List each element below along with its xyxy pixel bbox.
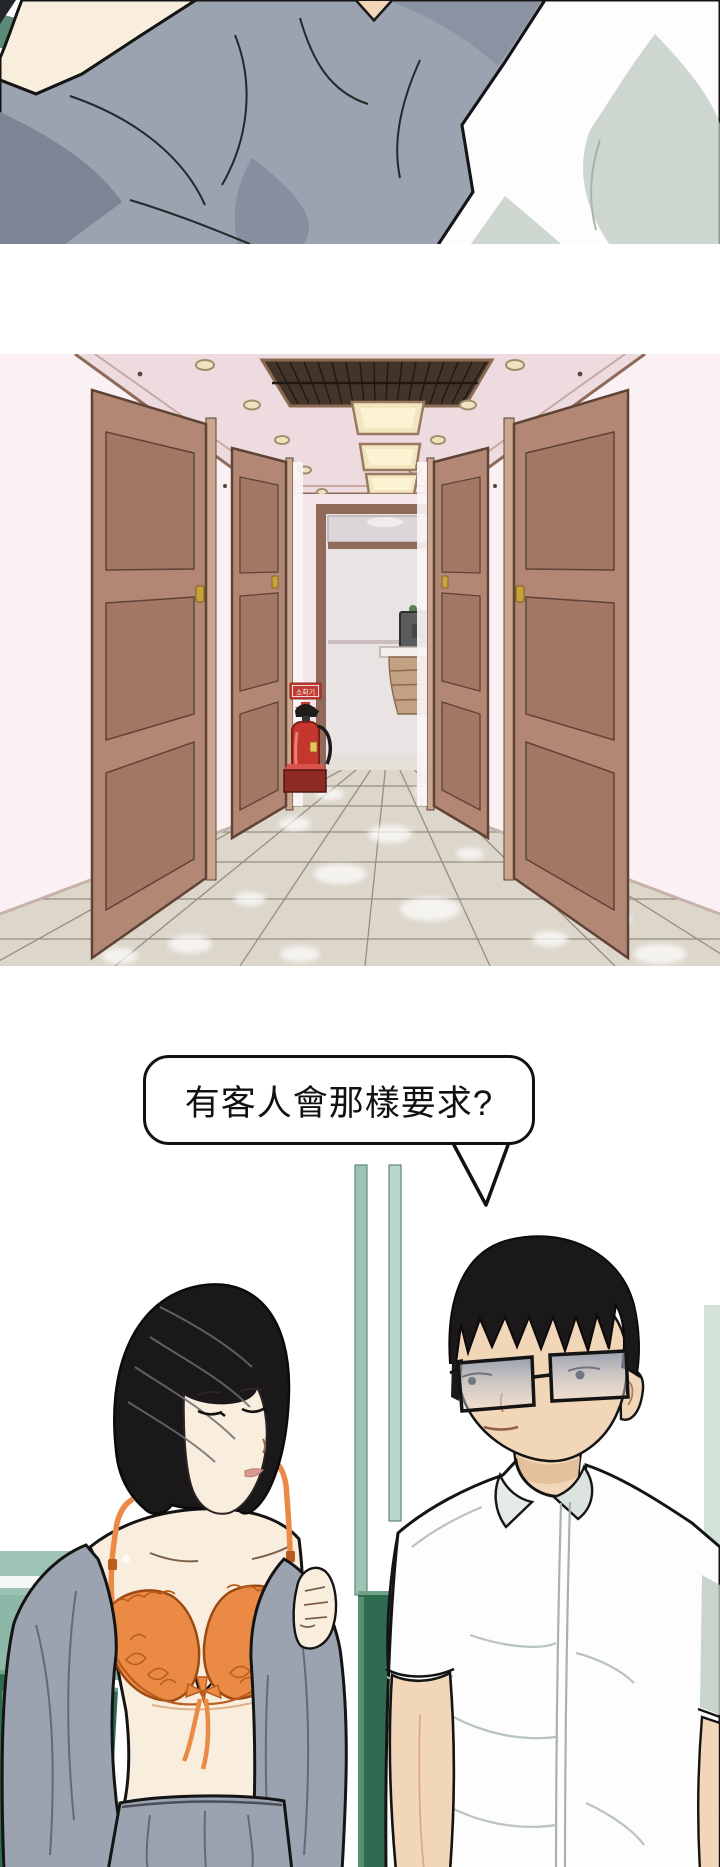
right-far-wall-strip — [417, 462, 427, 806]
woman-skirt — [108, 1796, 292, 1867]
extinguisher-label — [310, 742, 317, 752]
panel-closeup — [0, 0, 720, 244]
woman-hand — [294, 1568, 336, 1649]
panel-dialogue — [0, 1155, 720, 1867]
glasses-right-lens — [550, 1351, 628, 1401]
left-far-door-hinge — [272, 576, 278, 588]
right-near-door-frame — [504, 418, 514, 880]
extinguisher-stand-top — [284, 764, 326, 770]
fire-extinguisher-sign: 소화기 — [290, 683, 321, 699]
right-far-door — [417, 448, 488, 838]
glasses-left-lens — [458, 1357, 534, 1411]
right-far-door-hinge — [442, 576, 448, 588]
page-root: 소화기 — [0, 0, 720, 1867]
right-sleeve-shadow — [700, 1575, 720, 1715]
ceiling-vent — [262, 360, 492, 406]
woman-earring — [256, 1482, 262, 1488]
left-near-door-frame — [206, 418, 216, 880]
left-near-door — [92, 390, 216, 958]
right-near-door — [504, 390, 628, 958]
right-edge-strip — [704, 1305, 720, 1571]
glasses-bridge — [534, 1375, 550, 1377]
speech-bubble: 有客人會那樣要求? — [143, 1055, 535, 1145]
fire-sign-text: 소화기 — [296, 688, 315, 697]
panel-hallway: 소화기 — [0, 354, 720, 966]
speech-bubble-tail — [440, 1141, 530, 1211]
extinguisher-stand — [284, 770, 326, 792]
man-forearm-right — [698, 1717, 720, 1867]
right-near-door-handle — [516, 586, 524, 602]
speech-bubble-text: 有客人會那樣要求? — [185, 1075, 493, 1126]
bra-strap-buckle-left — [108, 1559, 117, 1570]
left-near-door-handle — [196, 586, 204, 602]
